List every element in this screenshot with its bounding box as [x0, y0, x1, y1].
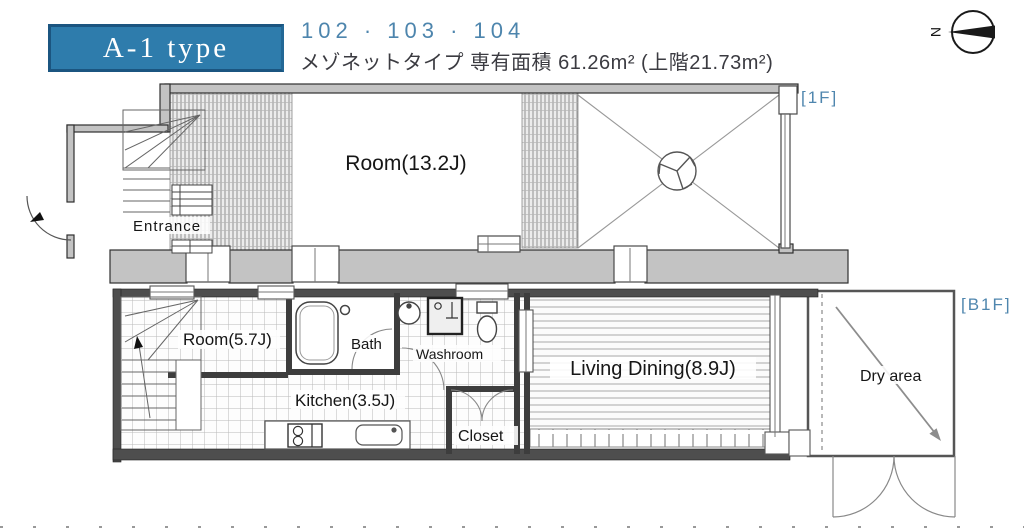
- label-entrance: Entrance: [133, 218, 201, 235]
- floorplan-drawing: N: [0, 0, 1024, 532]
- 1f-hatched-band-mid: [522, 93, 578, 248]
- label-dry-area: Dry area: [860, 368, 921, 385]
- compass-north-label: N: [928, 27, 944, 37]
- living-dining-edge-strip: [530, 429, 772, 447]
- kitchen-counter: [265, 421, 410, 449]
- floorplan-page: A-1 type 102 · 103 · 104 メゾネットタイプ 専有面積 6…: [0, 0, 1024, 532]
- washbasin: [398, 302, 420, 324]
- label-room-5-7j: Room(5.7J): [183, 330, 272, 349]
- tag-1f: [1F]: [801, 88, 838, 107]
- label-room-13-2j: Room(13.2J): [345, 152, 466, 175]
- label-kitchen: Kitchen(3.5J): [295, 391, 395, 410]
- 1f-entrance-door-arc: [27, 196, 71, 240]
- label-closet: Closet: [458, 428, 504, 445]
- toilet: [477, 302, 497, 342]
- label-washroom: Washroom: [416, 346, 483, 362]
- dry-area-doors-arc: [833, 456, 955, 517]
- fan-icon: [658, 152, 696, 190]
- label-bath: Bath: [351, 336, 382, 353]
- floor-b1f-plan: Room(5.7J) Bath Washroom Kitchen(3.5J) L…: [113, 284, 1012, 517]
- label-living-dining: Living Dining(8.9J): [570, 358, 736, 380]
- washing-machine: [428, 298, 462, 334]
- floor-1f-plan: Entrance Room(13.2J) [1F]: [27, 84, 848, 283]
- tag-b1f: [B1F]: [961, 295, 1012, 314]
- compass-icon: N: [928, 11, 995, 53]
